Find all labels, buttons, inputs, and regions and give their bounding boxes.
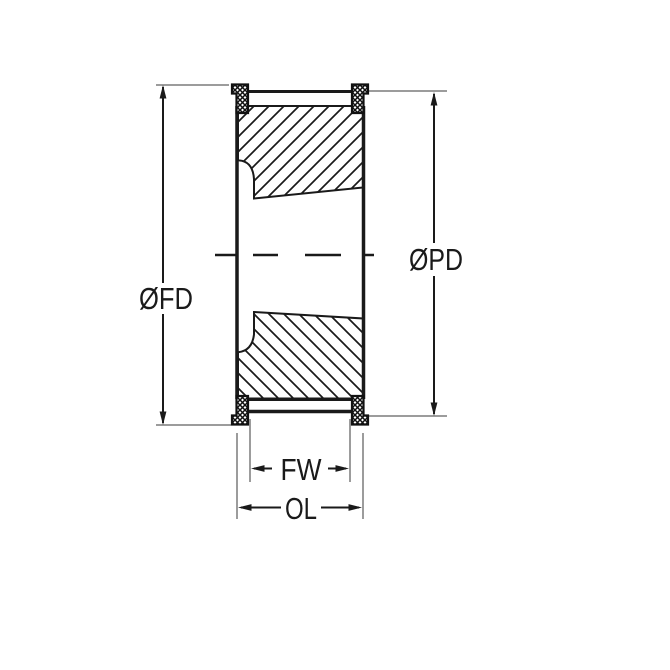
dimension-ol: OL [238,491,362,526]
arrowhead-fw-left [251,465,265,472]
arrowhead-pd-top [431,92,438,106]
pulley-section-drawing: ØFD ØPD FW OL [0,0,670,670]
lower-hub-section-hatch [238,312,363,399]
pulley-body [232,85,368,425]
pulley-technical-drawing: ØFD ØPD FW OL [0,0,670,670]
arrowhead-ol-left [238,504,252,511]
arrowhead-fd-top [160,85,167,99]
dimension-fd: ØFD [139,85,193,425]
dimension-fw: FW [251,452,349,487]
arrowhead-ol-right [349,504,363,511]
dimension-pd: ØPD [409,92,463,416]
label-flange-diameter: ØFD [139,281,193,316]
label-face-width: FW [281,452,323,487]
arrowhead-pd-bottom [431,403,438,417]
label-pitch-diameter: ØPD [409,242,463,277]
upper-hub-section-hatch [238,106,363,199]
arrowhead-fd-bottom [160,412,167,426]
label-overall-length: OL [285,491,317,526]
bottom-right-flange [352,396,368,425]
top-right-flange [352,85,368,114]
arrowhead-fw-right [336,465,350,472]
top-left-flange [232,85,248,114]
bottom-left-flange [232,396,248,425]
